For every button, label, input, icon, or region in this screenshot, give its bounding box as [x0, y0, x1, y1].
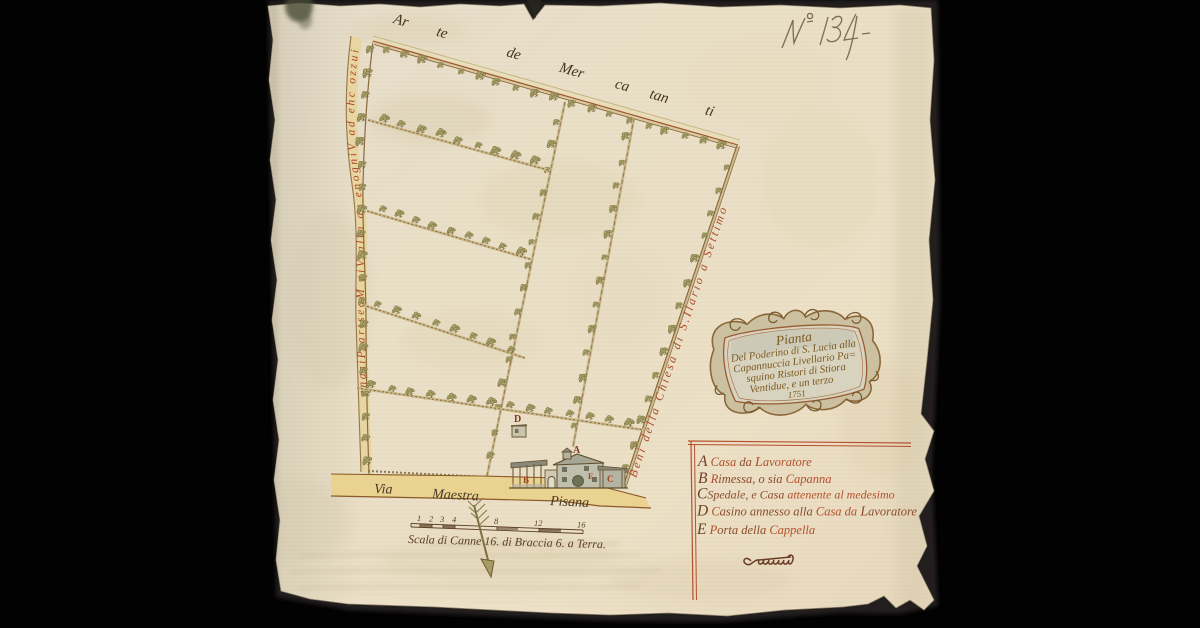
svg-text:3: 3: [439, 514, 444, 524]
svg-text:C: C: [607, 474, 614, 484]
svg-text:Pisana: Pisana: [549, 494, 590, 511]
svg-text:Via: Via: [374, 482, 393, 498]
svg-text:E: E: [588, 472, 593, 481]
svg-text:E Porta della Cappella: E Porta della Cappella: [696, 521, 815, 538]
svg-text:12: 12: [534, 518, 543, 528]
svg-text:A Casa da Lavoratore: A Casa da Lavoratore: [697, 453, 812, 470]
svg-text:Maestra: Maestra: [431, 487, 479, 504]
svg-text:B Rimessa, o sia Capanna: B Rimessa, o sia Capanna: [698, 470, 831, 487]
svg-text:D: D: [514, 414, 521, 425]
svg-text:CSpedale, e Casa attenente al: CSpedale, e Casa attenente al medesimo: [697, 486, 895, 503]
svg-text:A: A: [573, 445, 581, 456]
svg-text:16: 16: [577, 520, 586, 530]
svg-text:B: B: [523, 475, 529, 485]
svg-text:D Casino annesso alla Casa da: D Casino annesso alla Casa da Lavoratore: [696, 503, 917, 520]
svg-text:1: 1: [417, 513, 421, 523]
